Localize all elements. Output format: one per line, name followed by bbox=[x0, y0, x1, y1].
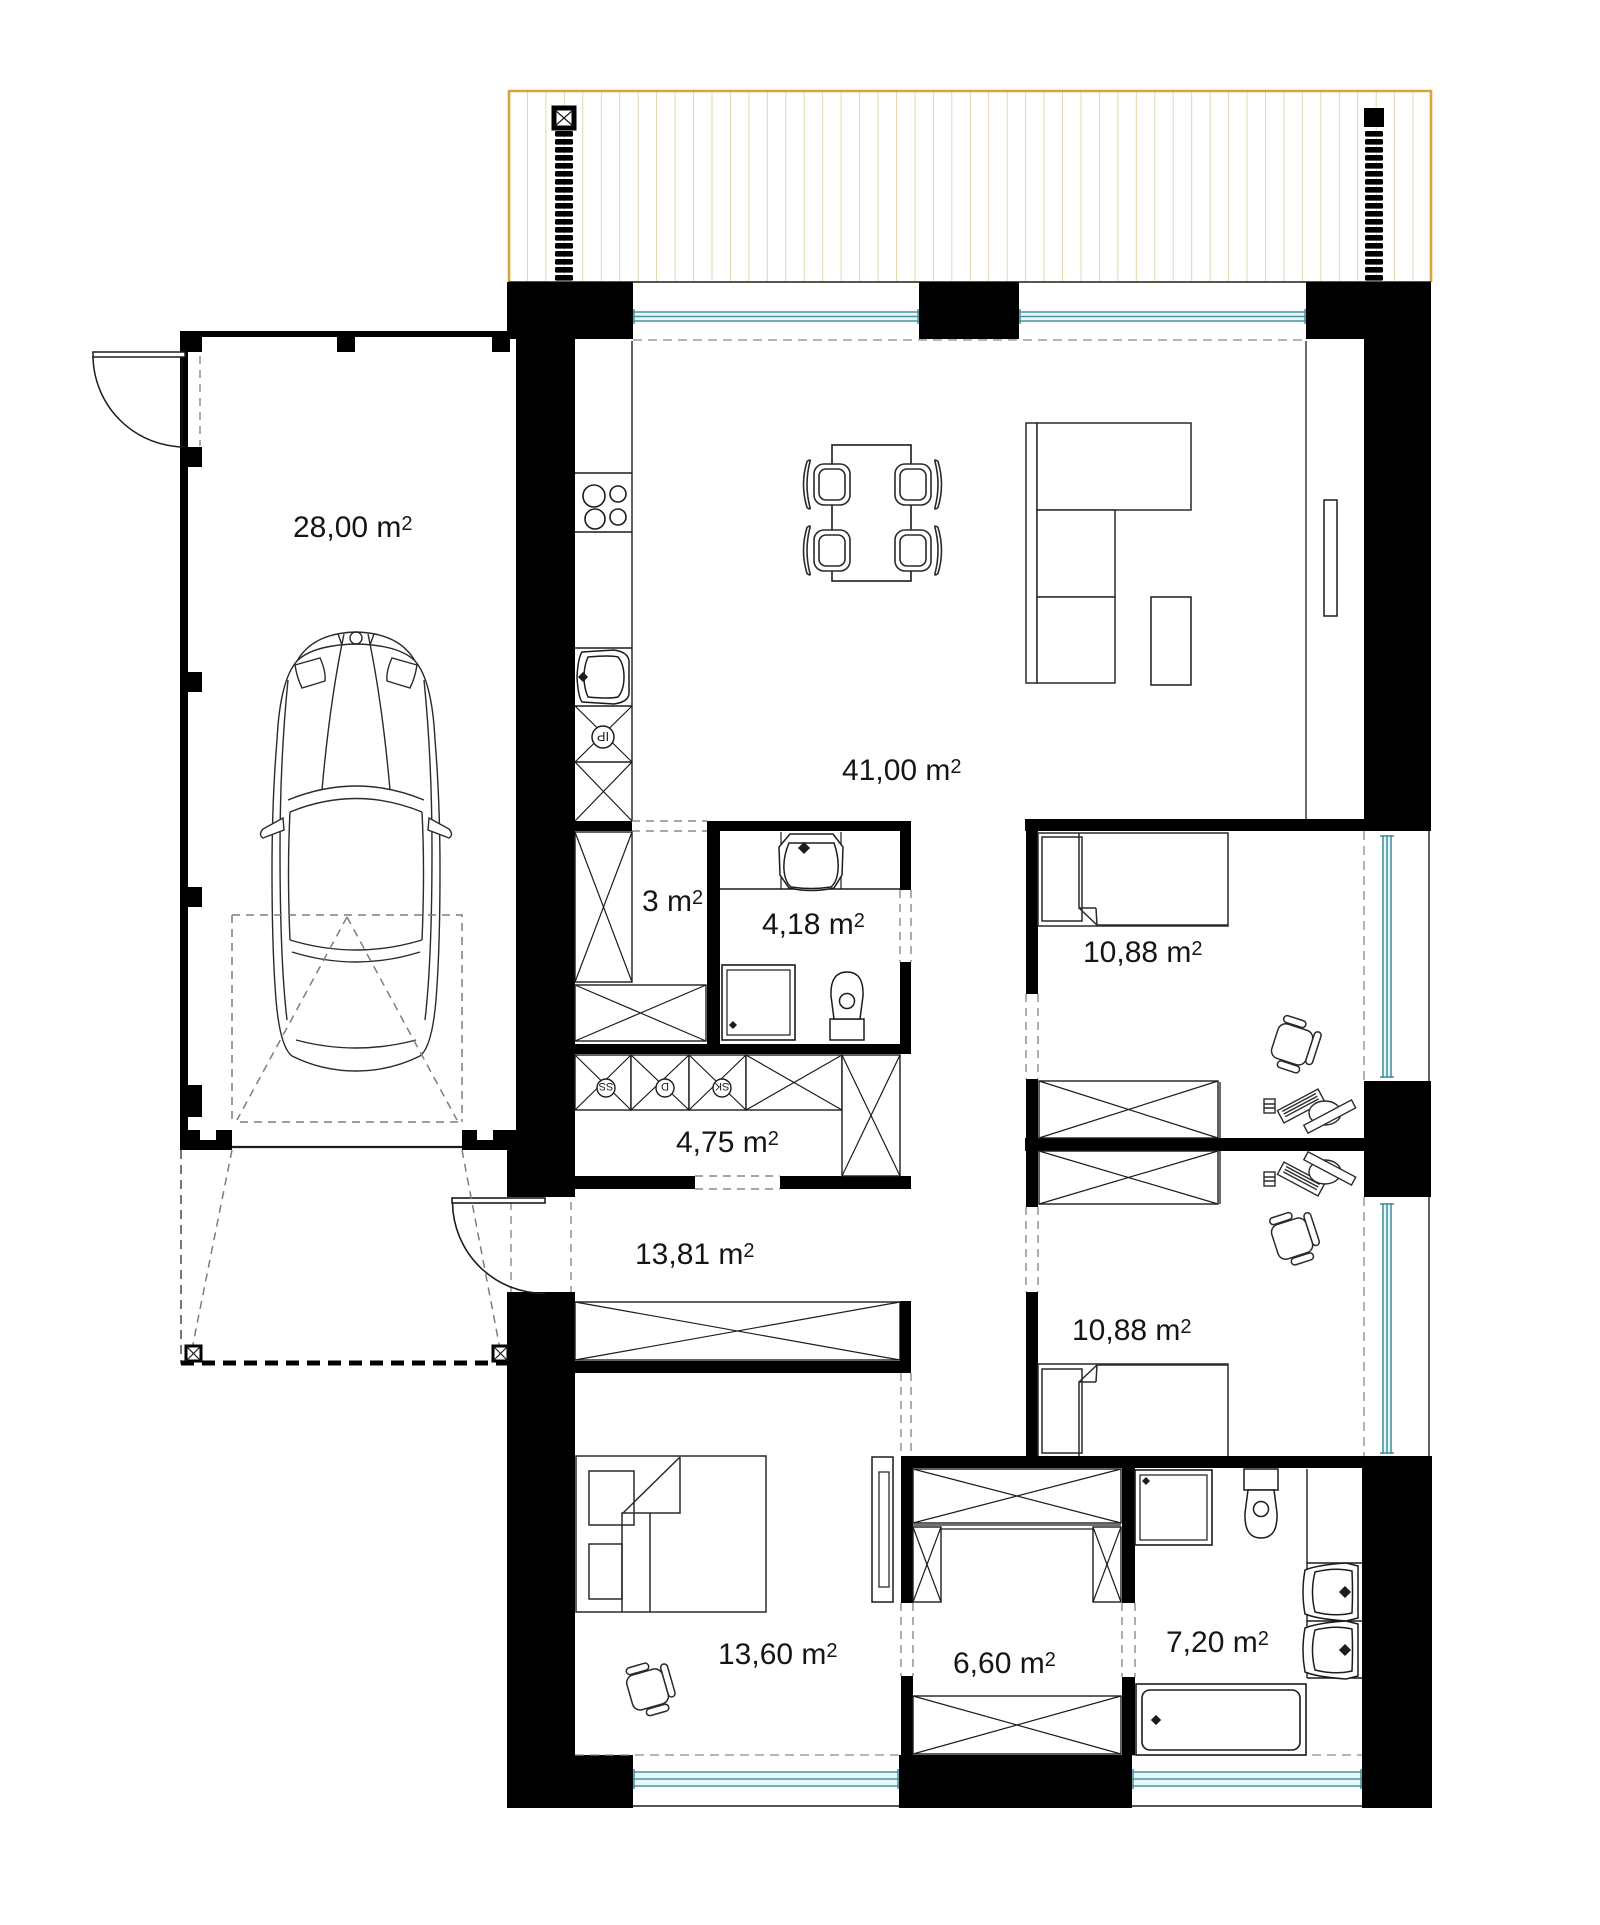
svg-text:6,60 m2: 6,60 m2 bbox=[953, 1647, 1056, 1680]
svg-text:4,18 m2: 4,18 m2 bbox=[762, 908, 865, 941]
svg-text:13,60 m2: 13,60 m2 bbox=[718, 1638, 838, 1671]
svg-text:28,00 m2: 28,00 m2 bbox=[293, 511, 413, 544]
svg-text:10,88 m2: 10,88 m2 bbox=[1083, 936, 1203, 969]
svg-text:D: D bbox=[661, 1080, 669, 1092]
svg-text:IP: IP bbox=[597, 729, 609, 744]
svg-text:SS: SS bbox=[599, 1080, 614, 1092]
svg-text:7,20 m2: 7,20 m2 bbox=[1166, 1626, 1269, 1659]
svg-text:41,00 m2: 41,00 m2 bbox=[842, 754, 962, 787]
svg-text:13,81 m2: 13,81 m2 bbox=[635, 1238, 755, 1271]
svg-text:SK: SK bbox=[714, 1080, 729, 1092]
svg-text:10,88 m2: 10,88 m2 bbox=[1072, 1314, 1192, 1347]
svg-text:4,75 m2: 4,75 m2 bbox=[676, 1126, 779, 1159]
